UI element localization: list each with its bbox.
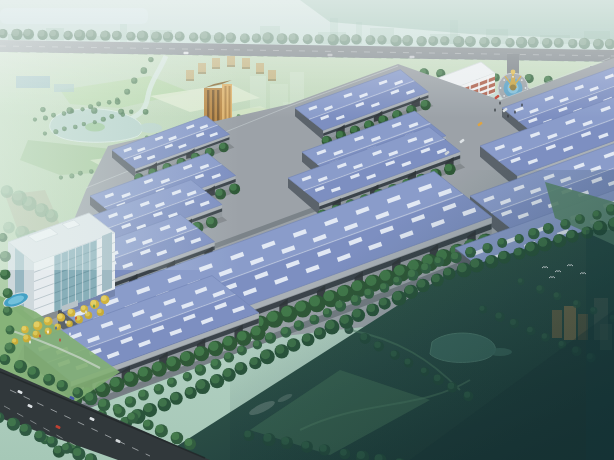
global-tint [0, 0, 614, 460]
aerial-industrial-park-rendering [0, 0, 614, 460]
aerial-rendering-viewport [0, 0, 614, 460]
